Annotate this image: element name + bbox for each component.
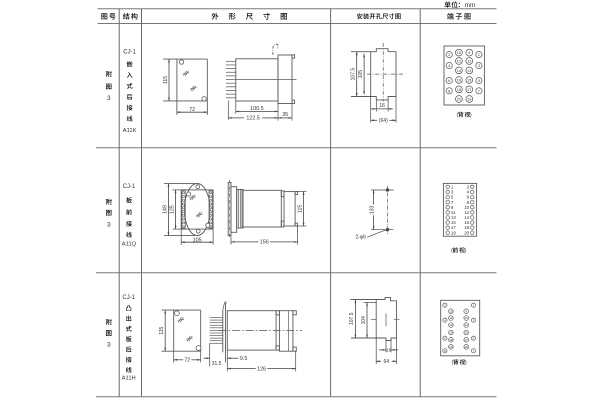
svg-text:10: 10 [457,51,461,55]
svg-text:4: 4 [448,64,450,68]
svg-text:3: 3 [107,95,111,102]
svg-text:105: 105 [358,70,364,79]
svg-text:11: 11 [467,60,471,64]
svg-text:19: 19 [451,230,456,235]
svg-text:3: 3 [478,64,480,68]
svg-text:18: 18 [457,88,461,92]
svg-text:(: ( [456,112,458,118]
svg-text:(64): (64) [379,118,388,124]
svg-text:): ) [464,248,466,254]
svg-text:16: 16 [449,331,453,335]
svg-text:72: 72 [189,107,195,113]
svg-text:14: 14 [457,69,461,73]
svg-text:115: 115 [159,326,165,334]
svg-text:1: 1 [478,53,480,57]
svg-text:8: 8 [448,89,450,93]
svg-text:10: 10 [449,309,453,313]
svg-text:A11H: A11H [122,375,136,381]
svg-text:mm: mm [465,2,476,9]
svg-text:19: 19 [465,345,469,349]
svg-text:15: 15 [465,331,469,335]
svg-text:CJ-1: CJ-1 [122,295,135,301]
svg-text:7: 7 [478,89,480,93]
svg-text:122.5: 122.5 [246,116,260,122]
svg-text:6: 6 [448,79,450,83]
svg-text:2: 2 [448,53,450,57]
svg-text:72: 72 [184,358,190,364]
svg-text:11: 11 [465,316,468,320]
svg-text:125: 125 [169,205,175,214]
svg-text:14: 14 [449,323,453,327]
svg-text:156: 156 [260,240,269,246]
svg-text:107.5: 107.5 [351,68,357,81]
svg-text:126: 126 [257,366,266,372]
svg-text:9: 9 [468,51,470,55]
svg-text:19: 19 [467,98,471,102]
svg-text:2-φ6: 2-φ6 [355,234,366,240]
svg-text:105: 105 [193,237,202,243]
svg-text:15: 15 [467,79,471,83]
svg-text:115: 115 [163,76,169,84]
svg-text:133: 133 [370,205,376,214]
svg-text:16: 16 [379,103,385,109]
svg-text:104: 104 [361,316,367,325]
svg-text:13: 13 [467,69,471,73]
svg-text:5: 5 [478,79,480,83]
svg-text:17: 17 [467,88,471,92]
svg-text:(: ( [451,360,453,366]
svg-text:CJ-1: CJ-1 [123,184,136,190]
svg-text:149: 149 [162,205,168,214]
svg-text:20: 20 [449,345,453,349]
svg-text:31.5: 31.5 [212,361,222,367]
svg-text:18: 18 [449,338,453,342]
svg-text:35: 35 [282,112,288,118]
svg-text:A11Q: A11Q [122,241,137,247]
svg-text:16: 16 [457,79,461,83]
svg-text:20: 20 [457,98,461,102]
svg-text:107.5: 107.5 [349,312,355,325]
svg-text:20: 20 [464,230,469,235]
svg-text:CJ-1: CJ-1 [123,50,136,56]
svg-text:64: 64 [384,359,390,365]
svg-text:115: 115 [297,205,303,213]
svg-text:(: ( [451,248,453,254]
svg-text:A11K: A11K [123,128,137,134]
svg-text:12: 12 [457,60,461,64]
svg-text:17: 17 [465,338,469,342]
svg-text:3: 3 [107,342,111,349]
svg-text:): ) [470,112,472,118]
svg-text:): ) [465,360,467,366]
svg-text:12: 12 [449,316,453,320]
svg-text:9.5: 9.5 [240,356,248,362]
svg-text:100.5: 100.5 [250,106,264,112]
svg-text:3: 3 [107,222,111,229]
svg-text:16: 16 [386,348,392,353]
svg-text:13: 13 [465,323,469,327]
